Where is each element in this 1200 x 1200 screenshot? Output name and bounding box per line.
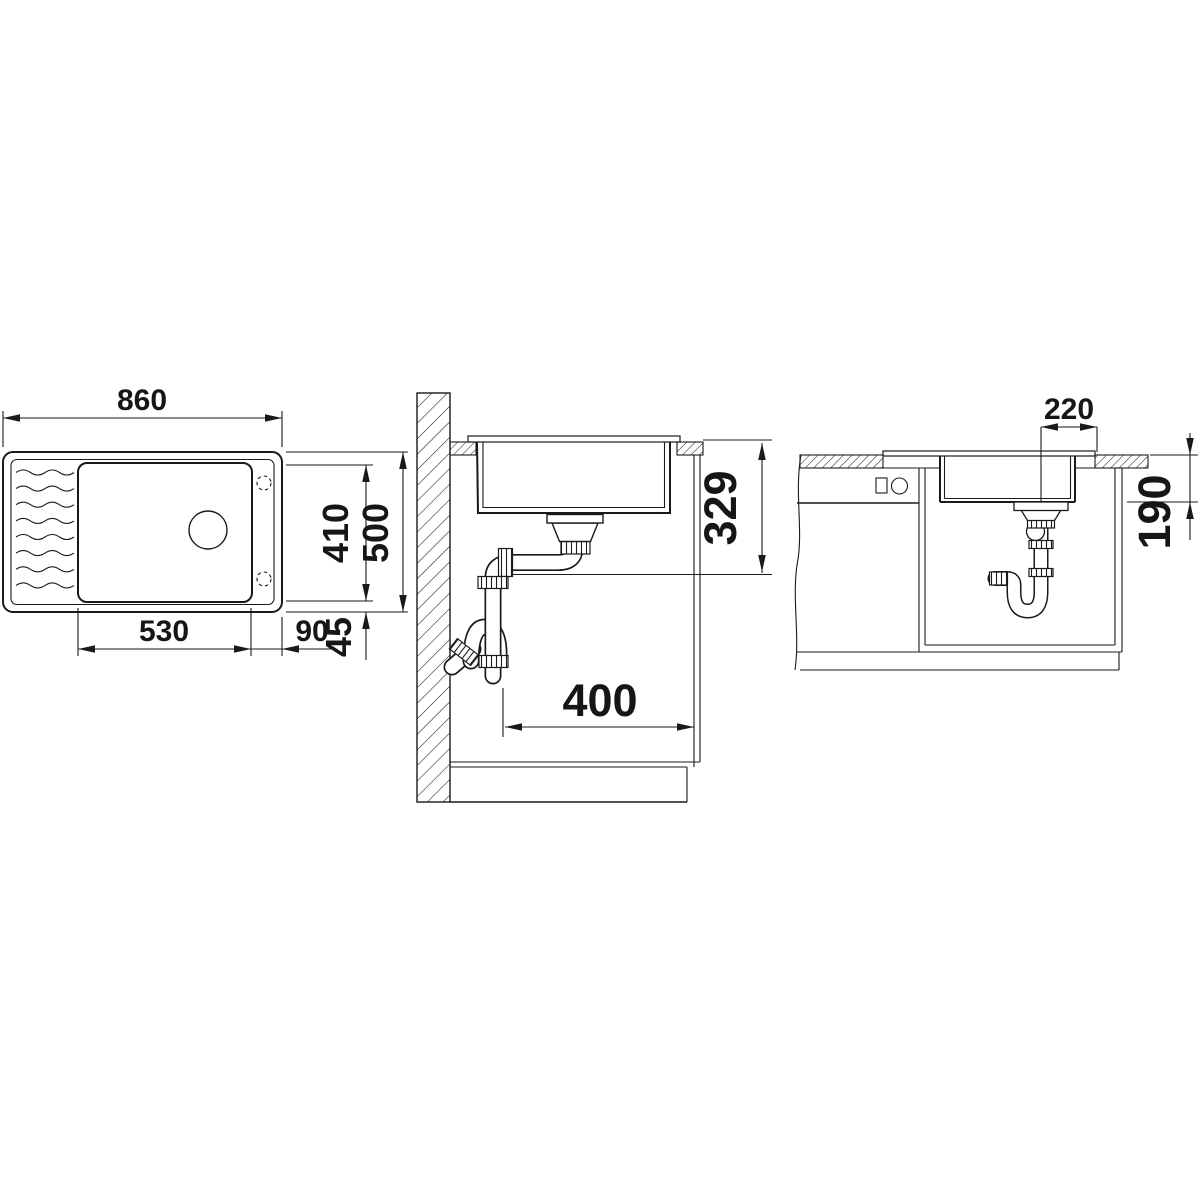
strainer-nut	[561, 541, 590, 554]
sink-installation-diagram: 860 410 500 530	[0, 0, 1200, 1200]
elbow-nut	[499, 549, 513, 577]
dim-label-500: 500	[355, 503, 396, 563]
dim-label-329: 329	[695, 470, 746, 545]
strainer-flange-front	[1014, 502, 1068, 511]
countertop-front-right	[1095, 455, 1148, 468]
strainer-cup	[552, 523, 598, 542]
countertop-right	[677, 442, 703, 455]
dim-label-190: 190	[1129, 474, 1180, 549]
countertop-front-left	[800, 455, 883, 468]
outlet-nut-front	[990, 572, 1008, 585]
countertop-left	[450, 442, 476, 455]
sink-rim-plate	[468, 436, 680, 442]
dim-label-45: 45	[318, 617, 359, 657]
dim-label-400: 400	[562, 675, 637, 726]
dim-label-220: 220	[1044, 393, 1094, 426]
tailpipe-nut-2	[1029, 569, 1053, 577]
strainer-flange	[547, 515, 603, 524]
wall-hatched	[417, 393, 450, 802]
strainer-cup-front	[1021, 510, 1061, 521]
dim-label-860: 860	[117, 384, 167, 417]
sink-rim-front	[883, 451, 1095, 456]
dim-label-530: 530	[139, 615, 189, 648]
trap-union-nut	[479, 656, 508, 668]
tailpipe-nut-1	[1029, 541, 1053, 549]
dim-label-410: 410	[315, 503, 356, 563]
pipe-union-nut	[478, 577, 508, 589]
